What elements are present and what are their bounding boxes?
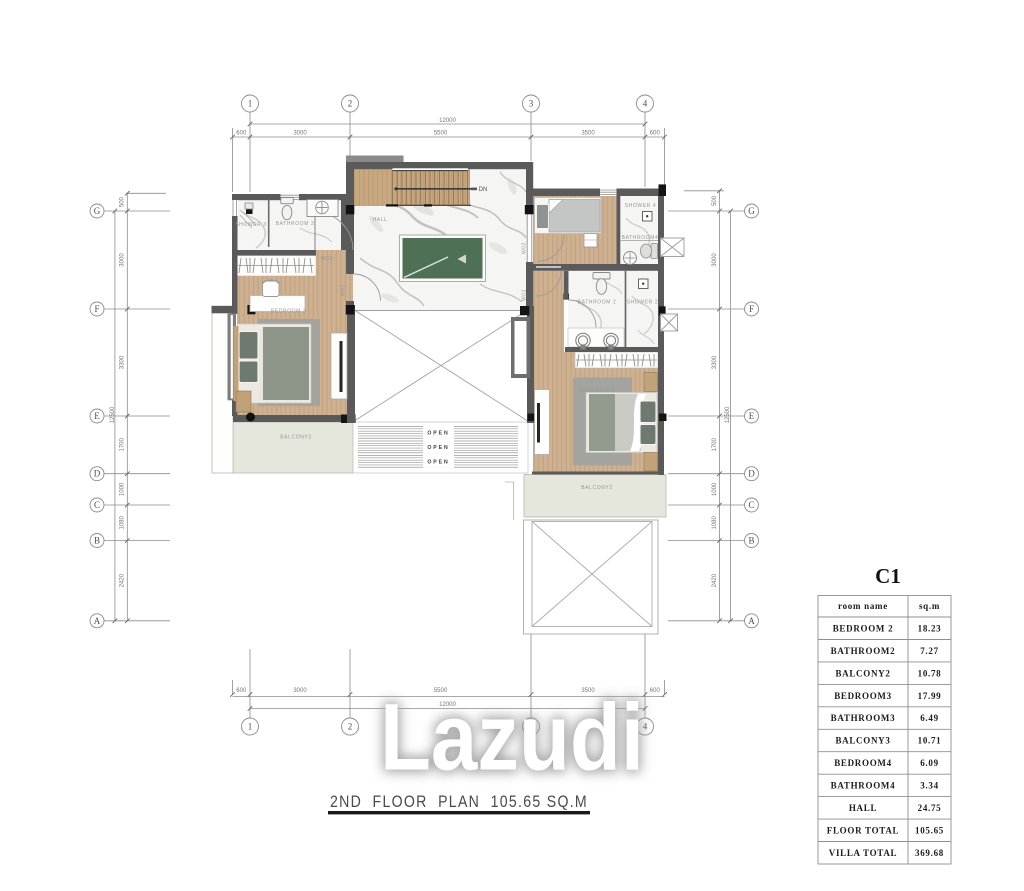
svg-text:1: 1 <box>248 99 253 109</box>
svg-text:BEDROOM 2: BEDROOM 2 <box>833 623 894 633</box>
svg-text:BEDROOM 3: BEDROOM 3 <box>271 309 306 315</box>
svg-text:2420: 2420 <box>712 573 718 587</box>
svg-text:BALCONY2: BALCONY2 <box>581 485 612 491</box>
svg-text:HALL: HALL <box>373 217 388 223</box>
svg-text:1080: 1080 <box>712 515 718 529</box>
svg-text:3000: 3000 <box>293 688 307 694</box>
svg-text:BALCONY3: BALCONY3 <box>835 736 890 746</box>
svg-text:2: 2 <box>348 99 353 109</box>
svg-text:BALCONY3: BALCONY3 <box>280 435 311 441</box>
svg-text:BATHROOM2: BATHROOM2 <box>831 646 896 656</box>
svg-text:BATHROOM 2: BATHROOM 2 <box>578 300 617 306</box>
svg-text:F: F <box>94 304 99 314</box>
svg-text:12000: 12000 <box>439 118 456 124</box>
svg-text:room name: room name <box>838 601 888 611</box>
svg-text:1700: 1700 <box>712 437 718 451</box>
svg-text:7.27: 7.27 <box>920 646 939 656</box>
svg-text:BATHROOM4: BATHROOM4 <box>622 235 659 241</box>
svg-text:6.09: 6.09 <box>920 758 939 768</box>
svg-text:W02: W02 <box>522 289 528 301</box>
svg-text:1000: 1000 <box>712 482 718 496</box>
svg-text:B: B <box>94 536 100 546</box>
svg-text:105.65: 105.65 <box>915 826 944 836</box>
svg-text:F: F <box>749 304 754 314</box>
svg-text:3300: 3300 <box>120 355 126 369</box>
svg-text:VILLA TOTAL: VILLA TOTAL <box>829 848 897 858</box>
svg-text:1: 1 <box>248 722 253 732</box>
svg-text:1700: 1700 <box>120 437 126 451</box>
svg-text:3300: 3300 <box>712 355 718 369</box>
svg-text:3000: 3000 <box>293 131 307 137</box>
svg-text:SHOWER 3: SHOWER 3 <box>235 222 266 228</box>
svg-text:600: 600 <box>236 131 247 137</box>
svg-text:BEDROOM3: BEDROOM3 <box>834 691 892 701</box>
svg-text:3000: 3000 <box>712 253 718 267</box>
svg-text:SHOWER 4: SHOWER 4 <box>625 203 656 209</box>
svg-text:W02: W02 <box>522 242 528 254</box>
svg-text:BATHROOM4: BATHROOM4 <box>831 781 896 791</box>
svg-text:18.23: 18.23 <box>918 623 942 633</box>
svg-text:SHOWER 2: SHOWER 2 <box>627 300 658 306</box>
svg-text:12500: 12500 <box>110 406 116 423</box>
svg-text:Lazudi: Lazudi <box>380 685 644 791</box>
svg-text:C1: C1 <box>875 564 901 588</box>
svg-text:E: E <box>749 411 755 421</box>
svg-text:600: 600 <box>650 688 661 694</box>
svg-text:600: 600 <box>650 131 661 137</box>
svg-text:24.75: 24.75 <box>918 803 942 813</box>
svg-text:1000: 1000 <box>120 482 126 496</box>
svg-text:B: B <box>748 536 754 546</box>
svg-text:369.68: 369.68 <box>915 848 944 858</box>
svg-text:10.78: 10.78 <box>918 668 942 678</box>
svg-text:17.99: 17.99 <box>918 691 942 701</box>
svg-text:FLOOR TOTAL: FLOOR TOTAL <box>827 826 899 836</box>
svg-text:C: C <box>94 500 100 510</box>
svg-text:5500: 5500 <box>434 131 448 137</box>
svg-text:A: A <box>748 616 755 626</box>
svg-text:3.34: 3.34 <box>920 781 939 791</box>
svg-text:BALCONY2: BALCONY2 <box>835 668 890 678</box>
svg-text:G: G <box>748 206 755 216</box>
svg-text:W02: W02 <box>321 256 333 262</box>
svg-text:10.71: 10.71 <box>918 736 942 746</box>
svg-text:D: D <box>94 469 101 479</box>
svg-text:3: 3 <box>529 99 534 109</box>
svg-text:OPEN: OPEN <box>427 431 449 437</box>
svg-text:OPEN: OPEN <box>427 460 449 466</box>
svg-text:E: E <box>94 411 100 421</box>
svg-text:HALL: HALL <box>849 803 877 813</box>
svg-text:1080: 1080 <box>120 515 126 529</box>
svg-text:BATHROOM3: BATHROOM3 <box>831 713 896 723</box>
svg-text:500: 500 <box>712 195 718 206</box>
svg-text:500: 500 <box>120 196 126 207</box>
svg-text:OPEN: OPEN <box>427 445 449 451</box>
svg-text:12500: 12500 <box>725 406 731 423</box>
svg-text:2: 2 <box>348 722 353 732</box>
svg-text:BEDROOM 2: BEDROOM 2 <box>579 388 614 394</box>
svg-text:C: C <box>748 500 754 510</box>
svg-text:BEDROOM4: BEDROOM4 <box>834 758 892 768</box>
svg-text:sq.m: sq.m <box>919 601 940 611</box>
svg-text:2420: 2420 <box>120 573 126 587</box>
svg-text:2ND FLOOR PLAN 105.65 SQ.M: 2ND FLOOR PLAN 105.65 SQ.M <box>330 793 588 811</box>
svg-text:3000: 3000 <box>120 253 126 267</box>
svg-text:6.49: 6.49 <box>920 713 939 723</box>
svg-text:D: D <box>748 469 755 479</box>
svg-text:BATHROOM 3: BATHROOM 3 <box>276 221 315 227</box>
svg-text:W02: W02 <box>341 284 347 296</box>
svg-text:3500: 3500 <box>581 131 595 137</box>
svg-text:G: G <box>94 206 101 216</box>
svg-text:600: 600 <box>236 688 247 694</box>
svg-text:4: 4 <box>643 99 648 109</box>
svg-text:A: A <box>94 616 101 626</box>
svg-text:DN: DN <box>479 187 488 193</box>
